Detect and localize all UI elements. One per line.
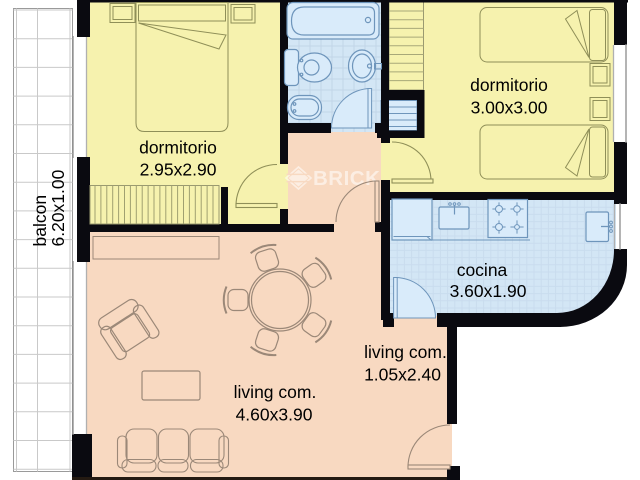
svg-text:4.60x3.90: 4.60x3.90 <box>236 405 313 425</box>
svg-text:living com.: living com. <box>364 342 447 362</box>
svg-text:3.00x3.00: 3.00x3.00 <box>471 98 548 118</box>
svg-text:1.05x2.40: 1.05x2.40 <box>364 365 441 385</box>
svg-text:living com.: living com. <box>234 382 317 402</box>
svg-text:BRICK: BRICK <box>313 167 380 190</box>
svg-text:balcon: balcon <box>30 195 50 247</box>
svg-text:6.20x1.00: 6.20x1.00 <box>48 169 68 246</box>
svg-text:dormitorio: dormitorio <box>139 138 217 158</box>
svg-text:dormitorio: dormitorio <box>470 75 548 95</box>
svg-text:cocina: cocina <box>457 260 508 280</box>
svg-text:3.60x1.90: 3.60x1.90 <box>450 281 527 301</box>
svg-text:2.95x2.90: 2.95x2.90 <box>140 160 217 180</box>
